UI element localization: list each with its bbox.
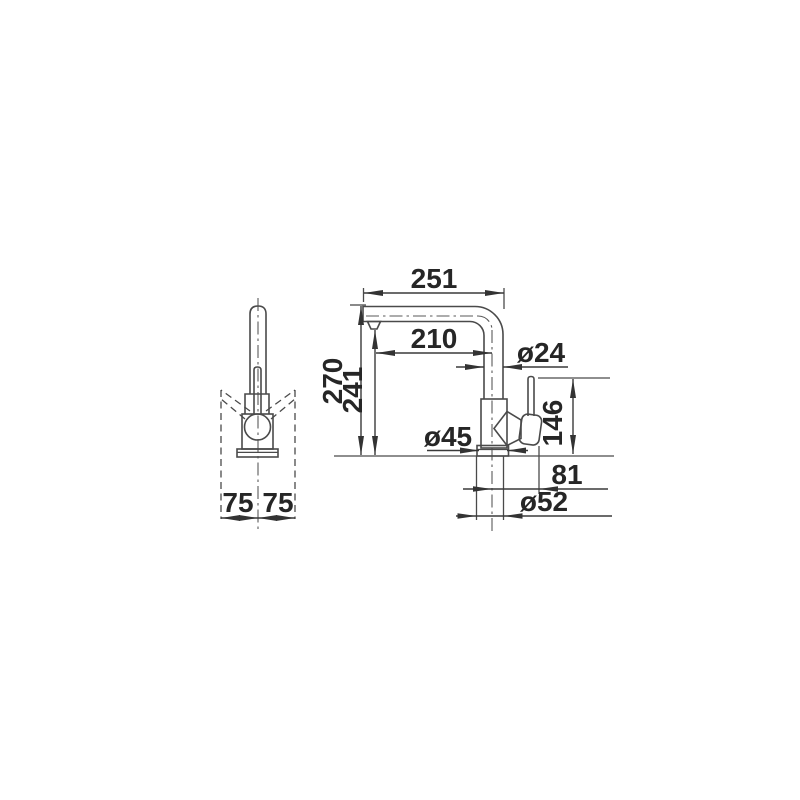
- dim-dia-45: ø45: [424, 421, 528, 452]
- dim-dia-52: ø52: [456, 486, 612, 519]
- dim-label-146: 146: [537, 400, 568, 447]
- aerator: [368, 322, 381, 330]
- dim-height-146: 146: [537, 378, 610, 454]
- front-collar: [245, 394, 269, 414]
- dim-height-241: 241: [337, 330, 375, 455]
- dim-label-75-right: 75: [262, 487, 293, 518]
- dim-reach-251: 251: [364, 263, 505, 309]
- front-view: 75 75: [221, 298, 295, 532]
- dim-label-o45: ø45: [424, 421, 472, 452]
- dim-label-210: 210: [411, 323, 458, 354]
- dim-label-75-left: 75: [222, 487, 253, 518]
- side-lever-rod: [528, 377, 534, 417]
- technical-drawing-canvas: 75 75 251: [0, 0, 800, 800]
- faucet-dimension-diagram: 75 75 251: [0, 0, 800, 800]
- dim-reach-210: 210: [376, 323, 492, 354]
- dim-label-241: 241: [337, 367, 368, 414]
- dim-label-o52: ø52: [520, 486, 568, 517]
- dim-label-251: 251: [411, 263, 458, 294]
- dim-label-o24: ø24: [517, 337, 566, 368]
- side-view: 251 210 ø24 270 241 146: [317, 263, 614, 532]
